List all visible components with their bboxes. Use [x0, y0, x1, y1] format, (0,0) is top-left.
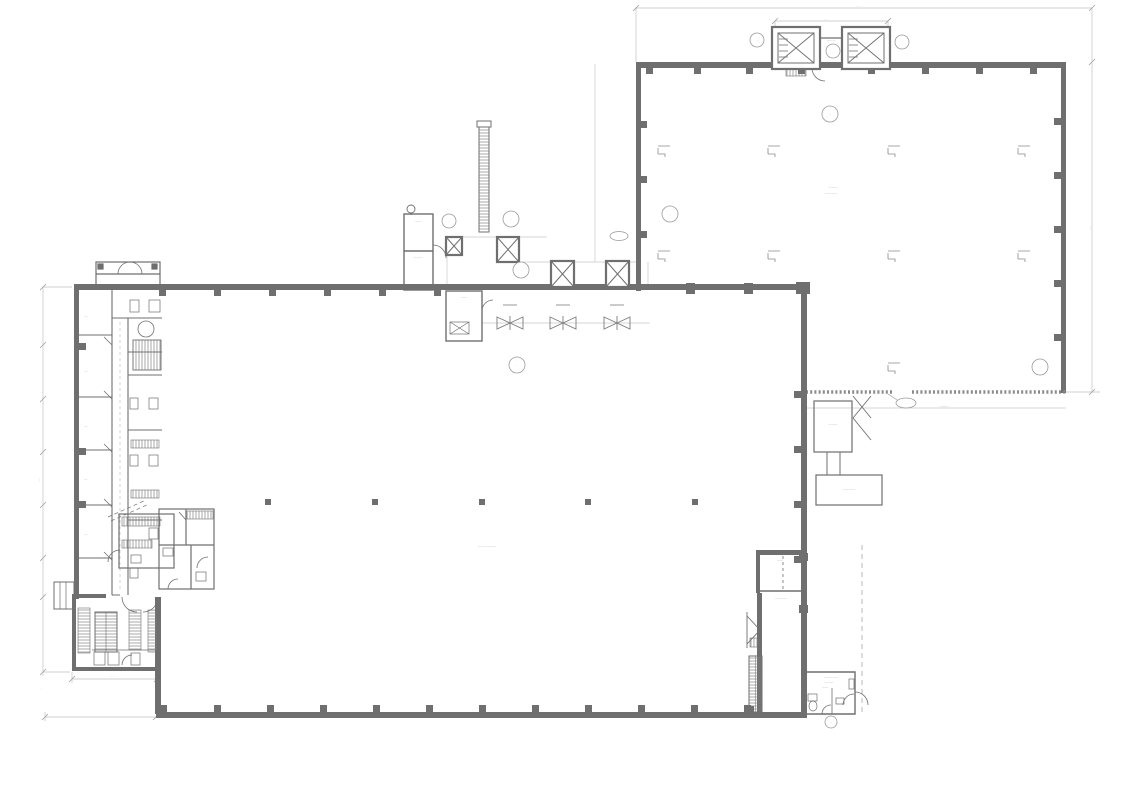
pilaster — [799, 553, 808, 561]
brackets-layer — [658, 146, 1030, 374]
svg-text:··: ·· — [830, 720, 832, 724]
pilaster — [641, 176, 647, 183]
columns-layer — [265, 499, 698, 505]
tiny-annotation: —————— — [478, 544, 496, 548]
dashed-room-wall-west — [756, 550, 760, 593]
dim-line-bottom — [45, 672, 157, 721]
door-leader — [888, 394, 897, 400]
round-table — [138, 321, 154, 337]
svg-text:··: ·· — [448, 219, 450, 223]
conveyor-connector — [827, 452, 840, 475]
reference-tag: ·· — [442, 214, 456, 228]
pilaster — [746, 68, 753, 74]
tiny-annotation: ···· — [1088, 226, 1092, 230]
escape-hatch-box — [750, 638, 760, 647]
svg-text:··: ·· — [510, 217, 512, 221]
bottom-right-area — [747, 545, 868, 714]
column-bracket-mark — [888, 146, 900, 157]
tiny-annotation: ——— — [414, 255, 423, 259]
pilaster — [744, 283, 753, 294]
pilaster — [796, 282, 810, 294]
pilaster — [794, 446, 801, 453]
svg-text:··: ·· — [901, 40, 903, 44]
column-bracket-mark — [768, 251, 780, 262]
tiny-annotation: —— — [822, 685, 828, 689]
pilaster — [746, 706, 754, 713]
annex-wall-south — [72, 667, 160, 671]
tiny-annotation: ———— — [775, 596, 787, 600]
svg-text:··: ·· — [832, 49, 834, 53]
tags-layer: ······················ — [442, 33, 1048, 728]
hall-a-wall-west — [636, 62, 641, 291]
column-bracket-mark — [768, 146, 780, 157]
column-bracket-mark — [888, 251, 900, 262]
column — [265, 499, 271, 505]
reference-tag: ·· — [509, 357, 525, 373]
tiny-annotation: ·· — [39, 688, 43, 690]
stair-cluster — [159, 509, 214, 589]
column — [479, 499, 485, 505]
tiny-annotation: ···· — [37, 478, 41, 482]
left-wing — [75, 262, 214, 595]
tiny-annotation: ··· — [111, 674, 114, 678]
reference-tag: ·· — [1032, 359, 1048, 375]
entry-door-arcs — [118, 262, 142, 274]
tiny-annotation: —· — [84, 532, 88, 536]
service-shaft — [606, 261, 629, 287]
column-bracket-mark — [1018, 146, 1030, 157]
pilaster — [1054, 172, 1061, 179]
conveyor-zigzag — [853, 396, 871, 440]
dimension-ticks — [40, 5, 1095, 720]
lift-shaft — [772, 27, 820, 69]
reference-tag: ·· — [513, 262, 529, 278]
dim-line-left — [43, 287, 72, 676]
hall-a-door-south — [888, 394, 916, 408]
annex-wc-door-arc — [122, 655, 132, 665]
column-bracket-mark — [658, 251, 670, 262]
pilaster — [799, 605, 808, 613]
service-shaft — [446, 237, 462, 255]
reference-tag: ·· — [826, 44, 840, 58]
reference-tag: ·· — [822, 106, 838, 122]
tiny-annotation: ———— — [843, 487, 855, 491]
tiny-annotation: —— — [777, 558, 783, 562]
service-shaft — [551, 261, 574, 287]
svg-text:··: ·· — [1039, 365, 1041, 369]
reference-tag: ·· — [825, 716, 837, 728]
pilaster — [324, 290, 331, 296]
hall-b-wall-east — [801, 290, 807, 718]
pilaster — [1054, 280, 1061, 287]
silo-vent-circle — [407, 205, 415, 213]
tiny-annotation: ·· — [905, 401, 907, 405]
wing-hatch-combs — [131, 440, 159, 498]
pilaster — [267, 705, 274, 712]
tiny-annotation: ···· — [856, 4, 860, 8]
annex — [54, 582, 161, 714]
hall-b-wall-west — [74, 284, 79, 599]
svg-text:··: ·· — [829, 112, 831, 116]
pilaster — [159, 290, 166, 296]
vestibule-door-arc — [482, 300, 493, 311]
pilaster — [794, 391, 801, 398]
pilaster — [379, 290, 386, 296]
annex-lockers-3 — [148, 610, 157, 652]
dashed-room-wall-north — [756, 550, 806, 555]
hall-b-wall-south — [156, 712, 807, 718]
pilaster — [479, 705, 486, 712]
tiny-annotation: ——— — [940, 404, 949, 408]
annex-wc-fixtures — [94, 652, 140, 665]
exterior-stair — [54, 582, 74, 609]
pilaster — [691, 705, 698, 712]
entry-vestibule — [96, 262, 160, 285]
hall-a — [636, 38, 1066, 408]
tiny-annotation: —— — [461, 295, 467, 299]
reference-tag: ·· — [662, 206, 678, 222]
wc-door-arcs — [822, 692, 868, 714]
reference-tag: ·· — [503, 211, 519, 227]
escape-ladder — [749, 656, 762, 712]
link-roof-lines — [447, 64, 637, 287]
pilaster — [434, 290, 441, 296]
column — [692, 499, 698, 505]
service-shaft — [497, 237, 519, 262]
tiny-annotation: —— — [415, 219, 421, 223]
annex-wall-north — [72, 594, 106, 598]
reference-tag: ·· — [750, 33, 764, 47]
pilaster — [79, 448, 86, 455]
hall-a-wall-east — [1061, 62, 1066, 393]
pilaster — [585, 705, 592, 712]
pilaster — [1054, 118, 1061, 125]
dim-line-right — [1066, 58, 1100, 392]
vestibule-machine — [450, 322, 469, 334]
tiny-annotation: ——— — [829, 422, 838, 426]
pilaster — [922, 68, 929, 74]
wing-stair — [133, 340, 161, 370]
pilaster — [269, 290, 276, 296]
tiny-annotation: ——— — [825, 680, 834, 684]
pilaster — [686, 283, 695, 294]
dock-canopy — [446, 291, 493, 341]
annex-lockers-1 — [78, 608, 90, 653]
conveyor-room-upper — [814, 401, 852, 452]
svg-text:··: ·· — [516, 363, 518, 367]
tiny-annotation: ——— — [827, 38, 836, 42]
pilaster — [976, 68, 983, 74]
pilaster — [159, 705, 167, 713]
chimney-ladder — [479, 127, 489, 232]
floor-plan-svg: ······················ ············—————… — [0, 0, 1122, 793]
pilaster — [641, 231, 647, 238]
svg-text:··: ·· — [520, 268, 522, 272]
hall-b-wall-north — [74, 284, 806, 290]
drawing-sheet: ······················ ············—————… — [0, 0, 1122, 793]
pilaster — [646, 68, 653, 74]
pilaster — [79, 343, 86, 350]
tiny-annotation: ——— — [829, 185, 838, 189]
pilaster — [638, 705, 645, 712]
column — [372, 499, 378, 505]
pilaster — [1054, 226, 1061, 233]
mid-room-door-arc — [108, 550, 120, 562]
svg-text:··: ·· — [669, 212, 671, 216]
tiny-annotation: —· — [84, 424, 88, 428]
pilaster — [532, 705, 539, 712]
tiny-annotation: ···· — [824, 17, 828, 21]
pilaster — [79, 501, 86, 508]
thin-lines — [447, 64, 1066, 408]
silo-unit — [404, 205, 433, 290]
chimney-cap — [477, 121, 491, 127]
tiny-annotation: —· — [84, 477, 88, 481]
reference-tag: ·· — [895, 35, 909, 49]
mid-room — [108, 514, 174, 568]
tiny-annotation: —· — [84, 369, 88, 373]
pilaster — [426, 705, 433, 712]
pilaster — [641, 121, 647, 128]
pilaster — [373, 705, 380, 712]
tiny-annotation: —· — [84, 314, 88, 318]
annex-lockers-2 — [129, 610, 141, 650]
lift-shaft — [842, 27, 890, 69]
tiny-annotation: ———— — [825, 191, 837, 195]
tiny-annotation: ————— — [824, 675, 839, 679]
column-bracket-mark — [1018, 251, 1030, 262]
annex-stair — [95, 612, 117, 652]
column-bracket-mark — [658, 146, 670, 157]
dimension-lines — [43, 8, 1100, 721]
pilaster — [1054, 334, 1061, 341]
labels-layer: ············———————————————————————————·… — [37, 4, 1092, 690]
wing-door-leaves — [104, 337, 112, 560]
silo-door-arc — [433, 245, 446, 258]
column — [585, 499, 591, 505]
pilaster — [1030, 68, 1037, 74]
cloud-mark — [610, 232, 628, 241]
pilaster — [320, 705, 327, 712]
svg-text:··: ·· — [756, 38, 758, 42]
pilaster — [794, 501, 801, 508]
pilaster — [694, 68, 701, 74]
pilaster — [214, 290, 221, 296]
pilaster — [214, 705, 221, 712]
column-bracket-mark — [888, 363, 900, 374]
